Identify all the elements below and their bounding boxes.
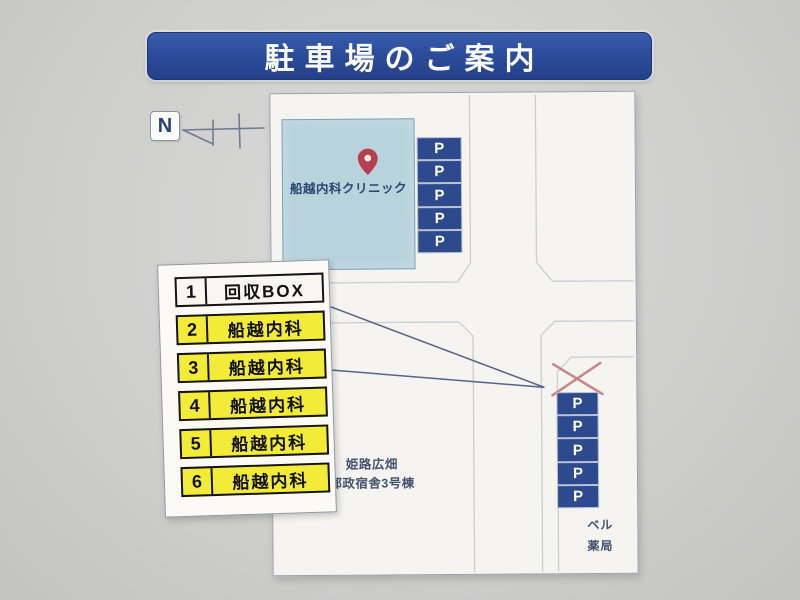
compass-n-box: N xyxy=(150,111,180,141)
parking-space: P xyxy=(418,208,461,230)
legend-space-number: 5 xyxy=(181,430,212,457)
parking-space: P xyxy=(557,393,597,414)
parking-space: P xyxy=(558,416,598,437)
legend-space-number: 2 xyxy=(178,316,209,343)
north-arrow-icon xyxy=(180,106,268,150)
legend-row: 5船越内科 xyxy=(179,424,329,459)
parking-space: P xyxy=(558,439,598,460)
parking-space: P xyxy=(418,231,461,253)
legend-pointer-line xyxy=(329,368,544,389)
sign-title: 駐車場のご案内 xyxy=(255,34,545,78)
legend-space-label: 船越内科 xyxy=(208,313,324,343)
parking-space: P xyxy=(418,184,461,206)
road-line xyxy=(535,94,633,282)
legend-pointer-line xyxy=(331,305,545,388)
legend-space-label: 回収BOX xyxy=(207,275,323,305)
legend-row: 6船越内科 xyxy=(180,462,330,497)
legend-row: 4船越内科 xyxy=(178,386,328,421)
parking-space: P xyxy=(418,161,461,183)
parking-column-top: PPPPP xyxy=(417,137,463,253)
legend-space-label: 船越内科 xyxy=(209,351,325,381)
pharmacy-label: ベル薬局 xyxy=(569,515,631,557)
map-pin-icon xyxy=(358,149,378,176)
parking-space: P xyxy=(558,486,598,507)
parking-space: P xyxy=(558,463,598,484)
legend-space-label: 船越内科 xyxy=(210,389,326,419)
legend-space-label: 船越内科 xyxy=(212,465,328,495)
parking-space: P xyxy=(418,138,461,160)
legend-space-number: 4 xyxy=(180,392,211,419)
legend-row: 2船越内科 xyxy=(176,311,326,346)
legend-space-label: 船越内科 xyxy=(211,427,327,457)
clinic-building: 船越内科クリニック xyxy=(281,118,415,270)
legend-panel: 1回収BOX2船越内科3船越内科4船越内科5船越内科6船越内科 xyxy=(157,259,337,517)
title-banner: 駐車場のご案内 xyxy=(147,32,652,80)
legend-row: 3船越内科 xyxy=(177,349,327,384)
clinic-name: 船越内科クリニック xyxy=(283,177,414,197)
parking-column-bottom: PPPPP xyxy=(556,392,599,508)
compass-n-label: N xyxy=(158,115,172,138)
legend-row: 1回収BOX xyxy=(174,273,324,308)
legend-space-number: 1 xyxy=(177,278,208,305)
legend-space-number: 6 xyxy=(182,468,213,495)
legend-rows: 1回収BOX2船越内科3船越内科4船越内科5船越内科6船越内科 xyxy=(174,273,330,498)
legend-space-number: 3 xyxy=(179,354,210,381)
